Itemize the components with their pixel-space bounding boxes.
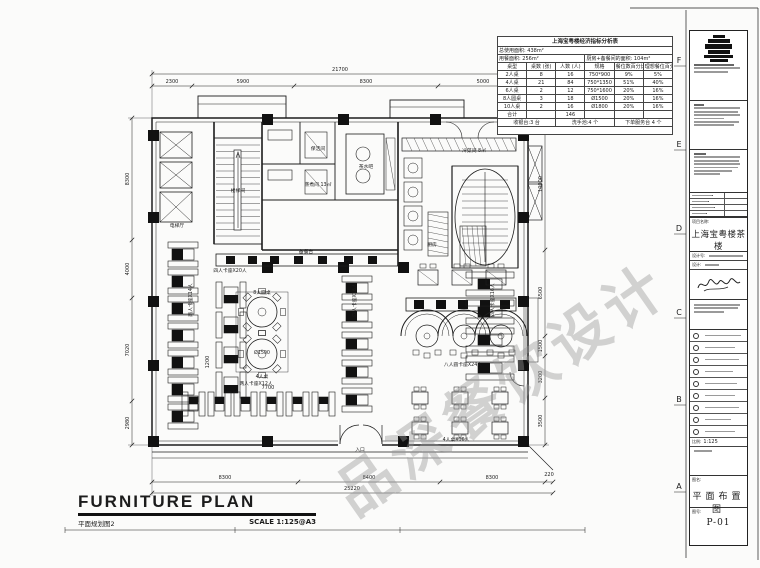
column	[398, 262, 409, 273]
plan-label: 8人圆桌	[253, 289, 271, 296]
table-cell: 18	[556, 95, 585, 103]
dimension-label: 25220	[344, 486, 360, 492]
design-no-row: 设计号:	[690, 252, 747, 261]
booth-bench	[342, 360, 372, 366]
booth-table-dark	[172, 276, 183, 287]
booth-bench	[168, 323, 198, 329]
project-name: 上海宝粤楼茶楼	[690, 228, 747, 252]
none	[528, 445, 553, 470]
counter-equip	[270, 256, 279, 264]
economic-indicator-table: 上海宝粤楼经济指标分析表总使用面积: 438m²用餐面积: 256m²厨房+备餐…	[497, 36, 673, 135]
booth-bench	[312, 392, 318, 416]
scale-label: 比例:	[690, 439, 701, 445]
scale-value: 1:125	[701, 439, 717, 445]
table-cell: 16%	[643, 95, 672, 103]
hatch-line	[502, 138, 508, 151]
booth-bench	[168, 261, 198, 267]
plan-label: 两人卡座X14人	[187, 283, 194, 317]
booth-table-dark	[172, 384, 183, 395]
burner-circle	[408, 163, 418, 173]
four-top-table	[452, 422, 468, 434]
plan-title-en: FURNITURE PLAN	[78, 492, 338, 512]
booth-table-dark	[172, 330, 183, 341]
round-table	[247, 297, 277, 327]
table-cell: 总使用面积: 438m²	[498, 47, 673, 55]
chair	[421, 387, 426, 391]
booth-bench	[208, 392, 214, 416]
chair	[414, 435, 419, 439]
notes-section-2	[690, 153, 747, 193]
dimension-label: 1500	[538, 340, 544, 353]
dimension-label: 4000	[125, 263, 131, 276]
table-cell: 2人桌	[498, 71, 527, 79]
wall-line	[386, 138, 395, 190]
booth-bench	[216, 372, 222, 398]
table-cell	[527, 111, 556, 119]
dimension-label: 3200	[538, 371, 544, 384]
column	[148, 360, 159, 371]
attachment-row	[690, 378, 747, 390]
dimension-label: 8400	[363, 475, 376, 481]
drawing-no: P-01	[690, 518, 747, 528]
grid-letter-C: C	[676, 308, 682, 317]
table-cell: 12	[556, 87, 585, 95]
door-arc	[446, 122, 462, 138]
plan-label: 楼梯间	[231, 187, 246, 194]
drawing-name-label: 图名:	[690, 476, 747, 483]
counter-equip	[318, 256, 327, 264]
lazy-susan	[461, 333, 467, 339]
chair	[243, 323, 251, 331]
booth-bench	[466, 318, 514, 324]
booth-table-dark	[172, 357, 183, 368]
sink-circle	[356, 169, 370, 183]
table-cell: 理想餐位百分比	[643, 63, 672, 71]
table-cell: 桌数 (张)	[527, 63, 556, 71]
table-cell: 2	[527, 87, 556, 95]
scale-row: 比例: 1:125	[690, 438, 747, 447]
table-cell	[585, 111, 614, 119]
column	[398, 436, 409, 447]
column	[518, 212, 529, 223]
column	[262, 436, 273, 447]
door-arc	[340, 425, 359, 444]
attachment-row	[690, 414, 747, 426]
table-cell: 20%	[614, 87, 643, 95]
table-cell: 餐位数百分比	[614, 63, 643, 71]
hatch-line	[494, 138, 500, 151]
table-cell: 人数 (人)	[556, 63, 585, 71]
hatch-line	[482, 226, 486, 266]
chair	[273, 335, 281, 343]
booth-bench	[168, 342, 198, 348]
table-cell: 10人桌	[498, 103, 527, 111]
dimension-label: 5900	[237, 79, 250, 85]
burner-circle	[408, 235, 418, 245]
table-cell: Ø1500	[585, 95, 614, 103]
table-cell: 下单服务台 4 个	[614, 119, 672, 127]
plan-label: Ø1500	[254, 349, 270, 356]
booth-bench	[342, 276, 372, 282]
attachment-row	[690, 354, 747, 366]
lazy-susan	[258, 308, 266, 316]
plan-label: 电梯厅	[170, 222, 185, 229]
column	[148, 130, 159, 141]
booth-table-dark	[172, 303, 183, 314]
booth-bench	[286, 392, 292, 416]
booth-bench	[168, 423, 198, 429]
chair	[281, 309, 286, 316]
outer-wall-inner	[156, 122, 524, 441]
hatch-line	[477, 226, 481, 266]
booth-bench	[168, 369, 198, 375]
booth-table-dark	[478, 279, 490, 289]
attachment-rows	[690, 330, 747, 438]
title-block: 项目名称: 上海宝粤楼茶楼 设计号: 设计: 比例: 1:125	[689, 30, 748, 546]
booth-bench	[225, 392, 231, 416]
design-no-label: 设计号:	[690, 253, 705, 259]
column	[148, 212, 159, 223]
booth-bench	[216, 342, 222, 368]
column	[430, 114, 441, 125]
grid-letter-F: F	[677, 56, 682, 65]
table-cell: 51%	[614, 79, 643, 87]
chair	[413, 350, 419, 355]
hatch-line	[406, 138, 412, 151]
chair	[461, 405, 466, 409]
plan-label: 蒸煮间 13㎡	[305, 181, 332, 188]
dimension-label: 5000	[477, 79, 490, 85]
sink-circle	[356, 147, 370, 161]
sheet-title-block: FURNITURE PLAN 平面规划图2 SCALE 1:125@A3	[78, 492, 338, 528]
wall-line	[305, 170, 327, 194]
dimension-label: 220	[544, 472, 554, 478]
dimension-label: 3500	[538, 415, 544, 428]
chair	[421, 435, 426, 439]
table-cell: 收银台:3 台	[498, 119, 556, 127]
title-underline	[78, 513, 316, 516]
dimension-label: 2980	[125, 417, 131, 430]
table-cell: 20%	[614, 95, 643, 103]
logo-section	[690, 35, 747, 101]
booth-table-dark	[346, 339, 357, 349]
booth-bench	[199, 392, 205, 416]
bar-counter	[346, 134, 384, 194]
table-cell	[643, 111, 672, 119]
hatch-line	[510, 138, 516, 151]
booth-bench	[342, 322, 372, 328]
booth-table-dark	[346, 367, 357, 377]
chair	[461, 387, 466, 391]
round-table	[453, 325, 475, 347]
chair	[421, 417, 426, 421]
chair	[461, 417, 466, 421]
burner-circle	[408, 187, 418, 197]
plan-label: 保洁间	[311, 145, 326, 152]
drawing-no-label: 图号:	[690, 508, 747, 515]
chair	[487, 350, 493, 355]
plan-label: 4人桌	[256, 373, 269, 380]
booth-bench	[240, 282, 246, 308]
column	[338, 114, 349, 125]
booth-table-dark	[189, 397, 198, 404]
hatch-line	[454, 138, 460, 151]
hatch-line	[428, 250, 448, 254]
chair	[494, 387, 499, 391]
door-arc	[363, 425, 382, 444]
plan-rect	[268, 130, 292, 140]
attachment-row	[690, 402, 747, 414]
plan-label: 备餐台	[299, 248, 314, 255]
dimension-label: 21700	[332, 67, 348, 73]
plan-label: 四人卡座X20人	[213, 267, 247, 274]
hatch-line	[428, 220, 448, 224]
hatch-line	[428, 214, 448, 218]
hatch-line	[414, 138, 420, 151]
burner-circle	[408, 211, 418, 221]
grid-letter-A: A	[676, 482, 682, 491]
chair	[430, 264, 436, 268]
table-cell: 16%	[643, 87, 672, 95]
chair	[435, 350, 441, 355]
plan-label: 两人卡座X12人	[239, 380, 273, 387]
hatch-line	[446, 138, 452, 151]
kitchen-equip	[404, 206, 422, 226]
chair	[273, 323, 281, 331]
booth-bench	[466, 356, 514, 362]
booth-bench	[240, 342, 246, 368]
chair	[420, 264, 426, 268]
chair	[501, 387, 506, 391]
booth-bench	[466, 374, 514, 380]
designer-row: 设计:	[690, 261, 747, 270]
booth-bench	[342, 350, 372, 356]
table-cell: 40%	[643, 79, 672, 87]
booth-table-dark	[241, 397, 250, 404]
plan-title-cn: 平面规划图2	[78, 518, 115, 528]
chair	[421, 405, 426, 409]
dimension-label: 8300	[219, 475, 232, 481]
chair	[414, 417, 419, 421]
table-cell: 6人桌	[498, 87, 527, 95]
chair	[243, 293, 251, 301]
table-cell: 750*900	[585, 71, 614, 79]
grid-letter-B: B	[676, 395, 682, 404]
table-cell	[614, 111, 643, 119]
plan-label: 4人桌X16人	[443, 436, 470, 443]
outer-wall	[152, 118, 528, 445]
round-table	[416, 325, 438, 347]
booth-table-dark	[293, 397, 302, 404]
table-cell: 16	[556, 103, 585, 111]
table-cell: 146	[556, 111, 585, 119]
table-cell: 4人桌	[498, 79, 527, 87]
table-cell: 750*1600	[585, 87, 614, 95]
hatch-line	[422, 138, 428, 151]
column	[518, 436, 529, 447]
plan-label: 八人圆卡座X24人	[444, 361, 482, 368]
revision-mini-table	[690, 193, 747, 218]
four-top-table	[412, 422, 428, 434]
chair	[498, 264, 504, 268]
notes-section-1	[690, 104, 747, 150]
column	[518, 296, 529, 307]
column	[148, 296, 159, 307]
hatch-line	[430, 138, 436, 151]
booth-bench	[277, 392, 283, 416]
chair	[454, 417, 459, 421]
door-arc	[478, 122, 494, 138]
chair	[454, 387, 459, 391]
drawing-name-cell: 图名: 平面布置图	[690, 476, 747, 508]
roof-protrusion	[390, 100, 464, 118]
table-cell: 750*1350	[585, 79, 614, 87]
attachment-row	[690, 342, 747, 354]
plan-scale: SCALE 1:125@A3	[249, 518, 316, 528]
table-cell	[498, 127, 673, 135]
plan-label: 冷菜间 8㎡	[462, 147, 486, 154]
dimension-label: 8300	[125, 173, 131, 186]
kitchen-equip	[404, 230, 422, 250]
booth-bench	[168, 377, 198, 383]
chair	[472, 350, 478, 355]
table-cell: 84	[556, 79, 585, 87]
counter-equip	[248, 256, 257, 264]
chair	[424, 353, 430, 358]
chair	[259, 331, 266, 336]
grid-letter-D: D	[676, 224, 682, 233]
booth-table-dark	[172, 249, 183, 260]
plan-label: 四人卡座X16人	[351, 283, 358, 317]
attachment-row	[690, 390, 747, 402]
plan-label: 茶水吧	[359, 163, 374, 170]
kitchen-equip	[404, 182, 422, 202]
table-cell: 2	[527, 103, 556, 111]
table-cell: 8人圆桌	[498, 95, 527, 103]
drawing-no-cell: 图号: P-01	[690, 508, 747, 530]
counter-equip	[294, 256, 303, 264]
dimension-label: 7020	[125, 344, 131, 357]
plan-label: 入口	[355, 447, 365, 453]
counter-equip	[344, 256, 353, 264]
counter-equip	[226, 256, 235, 264]
notes-section-3	[690, 304, 747, 330]
booth-bench	[342, 332, 372, 338]
column	[518, 360, 529, 371]
dimension-label: 8300	[360, 79, 373, 85]
drawing-sheet: FEDCBA2170023005900830050008300400070202…	[0, 0, 760, 568]
booth-bench	[303, 392, 309, 416]
booth-bench	[168, 404, 198, 410]
table-cell: 3	[527, 95, 556, 103]
chair	[259, 331, 266, 336]
signature-cell	[690, 270, 747, 300]
company-logo-icon	[702, 35, 736, 62]
designer-signature	[690, 270, 745, 298]
four-top-table	[492, 392, 508, 404]
booth-bench	[466, 290, 514, 296]
lazy-susan	[424, 333, 430, 339]
booth-table-dark	[215, 397, 224, 404]
booth-bench	[234, 392, 240, 416]
hatch-line	[428, 226, 448, 230]
chair	[501, 405, 506, 409]
table-cell: 用餐面积: 256m²	[498, 55, 585, 63]
dimension-label: 8300	[486, 475, 499, 481]
booth-bench	[342, 378, 372, 384]
four-top-table	[412, 392, 428, 404]
attachment-row	[690, 366, 747, 378]
table-cell: 上海宝粤楼经济指标分析表	[498, 37, 673, 47]
hatch-line	[428, 238, 448, 242]
chair	[494, 435, 499, 439]
booth-bench	[168, 350, 198, 356]
kitchen-equip	[404, 158, 422, 178]
table-cell: 5%	[643, 71, 672, 79]
booth-bench	[329, 392, 335, 416]
table-cell: 16	[556, 71, 585, 79]
plan-rect	[268, 170, 292, 180]
counter-equip	[368, 256, 377, 264]
hatch-line	[486, 138, 492, 151]
grid-letter-E: E	[676, 140, 681, 149]
table-cell: 洗手池:4 个	[556, 119, 614, 127]
table-cell: 合计	[498, 111, 527, 119]
dimension-label: 6500	[538, 287, 544, 300]
booth-bench	[168, 242, 198, 248]
booth-table-dark	[172, 411, 183, 422]
project-label: 项目名称:	[690, 218, 747, 225]
column	[262, 114, 273, 125]
counter-equip	[458, 300, 468, 309]
booth-bench	[342, 388, 372, 394]
chair	[454, 264, 460, 268]
dimension-label: 2300	[166, 79, 179, 85]
booth-table-dark	[346, 395, 357, 405]
counter-equip	[436, 300, 446, 309]
table-cell: 规格	[585, 63, 614, 71]
wall-line	[305, 132, 327, 158]
booth-table-dark	[478, 335, 490, 345]
dimension-label: 1200	[205, 356, 211, 369]
chair	[414, 405, 419, 409]
chair	[414, 387, 419, 391]
table-cell: 厨房+备餐间的面积: 104m²	[585, 55, 673, 63]
four-top-table	[492, 422, 508, 434]
hatch-line	[428, 232, 448, 236]
design-label: 设计:	[690, 262, 701, 268]
booth-bench	[216, 312, 222, 338]
project-name-cell: 项目名称: 上海宝粤楼茶楼	[690, 218, 747, 252]
table-cell: 9%	[614, 71, 643, 79]
table-cell: 桌型	[498, 63, 527, 71]
booth-bench	[251, 392, 257, 416]
table-cell: 20%	[614, 103, 643, 111]
booth-bench	[466, 346, 514, 352]
table-cell: 16%	[643, 103, 672, 111]
booth-bench	[260, 392, 266, 416]
table-cell: 21	[527, 79, 556, 87]
attachment-row	[690, 426, 747, 438]
table-cell: 8	[527, 71, 556, 79]
chair	[494, 405, 499, 409]
booth-bench	[342, 406, 372, 412]
wall-line	[418, 270, 438, 285]
four-top-table	[452, 392, 468, 404]
chair	[498, 353, 504, 358]
plan-label: 厨房	[427, 241, 437, 248]
plan-label: 四人卡座X16人	[489, 283, 496, 317]
